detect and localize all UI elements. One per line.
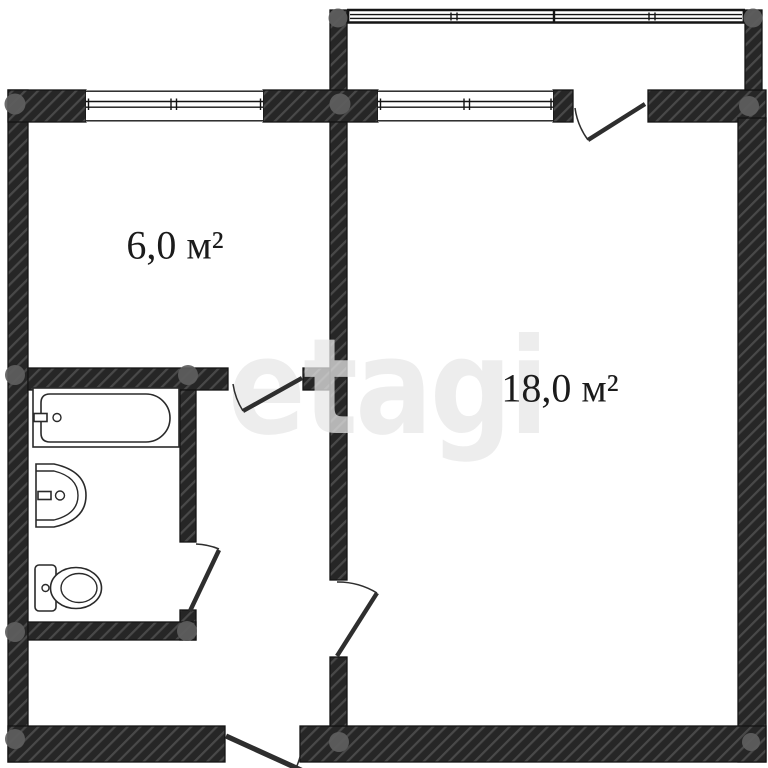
wall-top-segment-b bbox=[263, 90, 378, 122]
floor-plan-page: etagi 6,0 м² 18,0 м bbox=[0, 0, 768, 768]
balcony-glazing bbox=[347, 10, 745, 23]
wall-junction-dot bbox=[329, 732, 349, 752]
living-room-door-swing-arc bbox=[337, 582, 377, 593]
living-room-door bbox=[337, 582, 377, 656]
wall-junction-dot bbox=[330, 94, 351, 115]
wall-bottom-left bbox=[8, 726, 225, 762]
floor-plan: etagi 6,0 м² 18,0 м bbox=[0, 0, 768, 768]
bathroom-door bbox=[190, 544, 219, 611]
sink-faucet bbox=[38, 492, 51, 500]
wall-junction-dot bbox=[5, 729, 25, 749]
toilet bbox=[35, 565, 102, 611]
wall-junction-dot bbox=[178, 365, 198, 385]
wall-central-lower bbox=[330, 657, 347, 726]
balcony-door-leaf bbox=[588, 104, 645, 140]
wall-kitchen-bottom bbox=[28, 368, 228, 390]
wall-left-outer bbox=[8, 90, 28, 762]
wall-junction-dot bbox=[742, 733, 760, 751]
wall-bathroom-right-upper bbox=[180, 390, 196, 542]
wall-junction-dot bbox=[329, 9, 348, 28]
watermark-logo: etagi bbox=[228, 311, 546, 465]
kitchen-window-opening bbox=[86, 90, 263, 122]
sink bbox=[36, 464, 86, 527]
entrance-door bbox=[226, 736, 303, 768]
wall-junction-dot bbox=[5, 365, 25, 385]
wall-junction-dot bbox=[744, 9, 763, 28]
wall-top-segment-c bbox=[553, 90, 573, 122]
wall-right-outer bbox=[738, 118, 766, 762]
bathtub bbox=[33, 388, 179, 447]
wall-bottom-right bbox=[300, 726, 766, 762]
bathtub-faucet bbox=[34, 414, 47, 422]
wall-junction-dot bbox=[177, 621, 197, 641]
balcony-door bbox=[575, 104, 645, 140]
living-room-door-leaf bbox=[337, 593, 377, 656]
wall-junction-dot bbox=[5, 94, 26, 115]
kitchen-window bbox=[86, 90, 263, 122]
balcony-door-swing-arc bbox=[575, 108, 588, 140]
wall-junction-dot bbox=[739, 96, 759, 116]
kitchen-area-label: 6,0 м² bbox=[126, 223, 223, 268]
entrance-door-leaf bbox=[226, 736, 303, 768]
bathroom-door-leaf bbox=[190, 550, 219, 611]
living-room-window-opening bbox=[378, 90, 553, 122]
bathroom-door-swing-arc bbox=[196, 544, 219, 549]
wall-junction-dot bbox=[5, 622, 25, 642]
wall-bathroom-bottom bbox=[28, 622, 196, 640]
living-room-area-label: 18,0 м² bbox=[501, 366, 618, 411]
living-room-window bbox=[378, 90, 553, 122]
